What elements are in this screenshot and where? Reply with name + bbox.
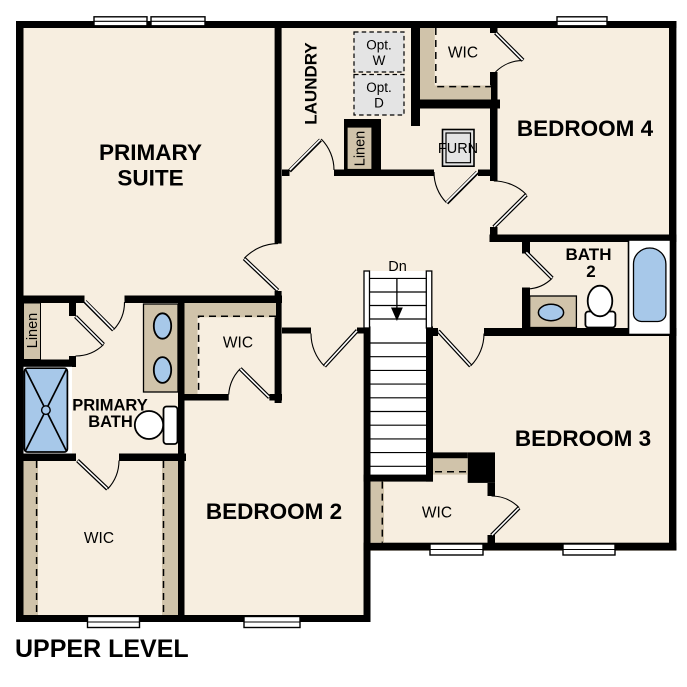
svg-text:WIC: WIC xyxy=(223,335,253,352)
svg-text:WIC: WIC xyxy=(84,530,114,547)
svg-text:Dn: Dn xyxy=(388,259,407,275)
svg-text:BEDROOM 3: BEDROOM 3 xyxy=(515,426,651,451)
svg-text:UPPER LEVEL: UPPER LEVEL xyxy=(15,635,189,663)
svg-text:FURN: FURN xyxy=(438,141,478,157)
svg-text:WIC: WIC xyxy=(422,505,452,522)
svg-text:PRIMARY: PRIMARY xyxy=(72,397,147,415)
svg-text:Opt.: Opt. xyxy=(366,38,392,53)
svg-text:BEDROOM 4: BEDROOM 4 xyxy=(517,116,654,141)
svg-text:D: D xyxy=(374,96,384,111)
svg-text:PRIMARY: PRIMARY xyxy=(99,140,202,165)
svg-text:BEDROOM 2: BEDROOM 2 xyxy=(206,499,342,524)
svg-text:LAUNDRY: LAUNDRY xyxy=(302,42,321,125)
svg-text:2: 2 xyxy=(586,262,595,281)
svg-text:WIC: WIC xyxy=(448,45,478,62)
svg-text:Linen: Linen xyxy=(25,313,41,348)
svg-text:BATH: BATH xyxy=(88,413,133,431)
svg-text:SUITE: SUITE xyxy=(117,166,183,191)
svg-text:W: W xyxy=(373,53,386,68)
svg-text:Opt.: Opt. xyxy=(366,80,392,95)
svg-text:Linen: Linen xyxy=(353,131,369,166)
